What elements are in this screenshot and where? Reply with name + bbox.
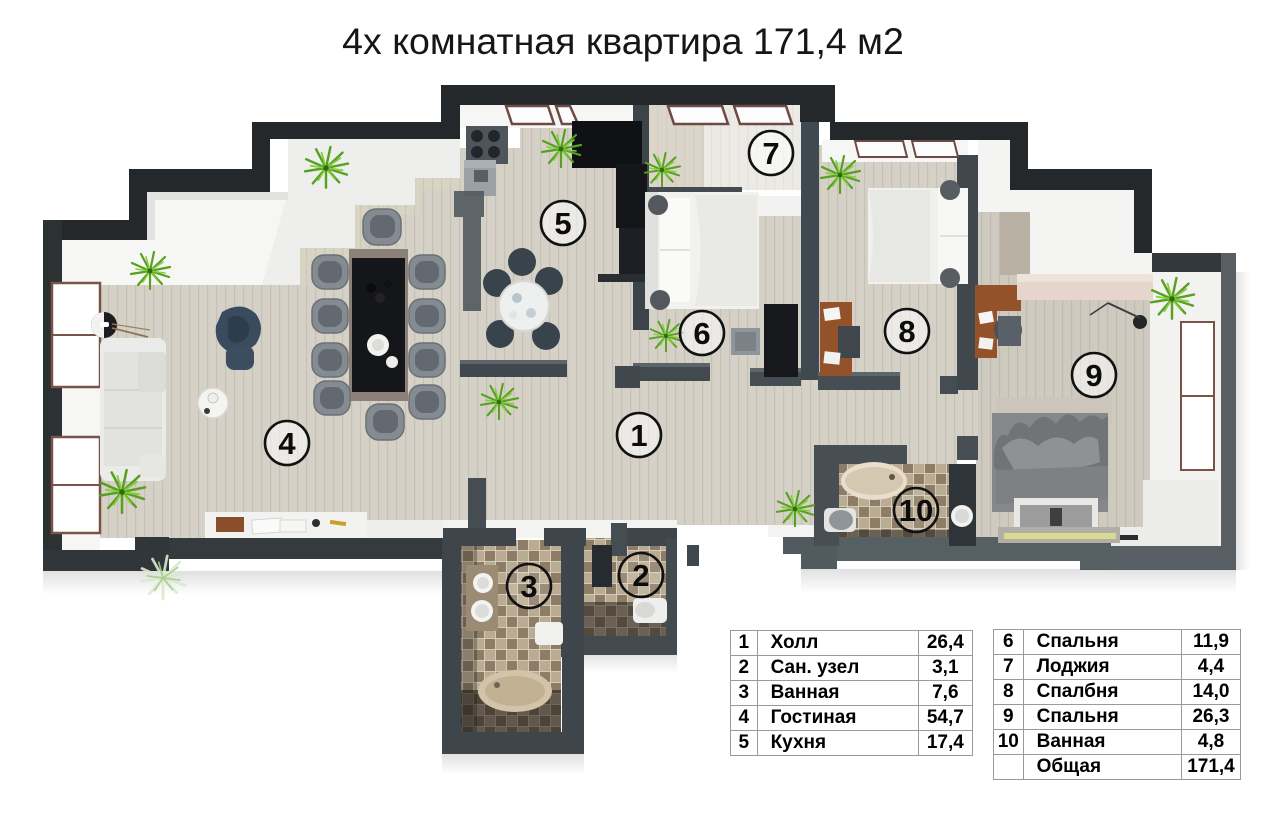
- svg-text:9: 9: [1085, 358, 1102, 393]
- svg-text:6: 6: [693, 316, 710, 351]
- svg-text:1: 1: [630, 418, 647, 453]
- svg-text:5: 5: [554, 206, 571, 241]
- svg-text:10: 10: [899, 493, 933, 528]
- svg-text:4: 4: [278, 426, 296, 461]
- svg-text:7: 7: [762, 136, 779, 171]
- svg-text:2: 2: [632, 558, 649, 593]
- svg-text:8: 8: [898, 314, 915, 349]
- svg-text:3: 3: [520, 569, 537, 604]
